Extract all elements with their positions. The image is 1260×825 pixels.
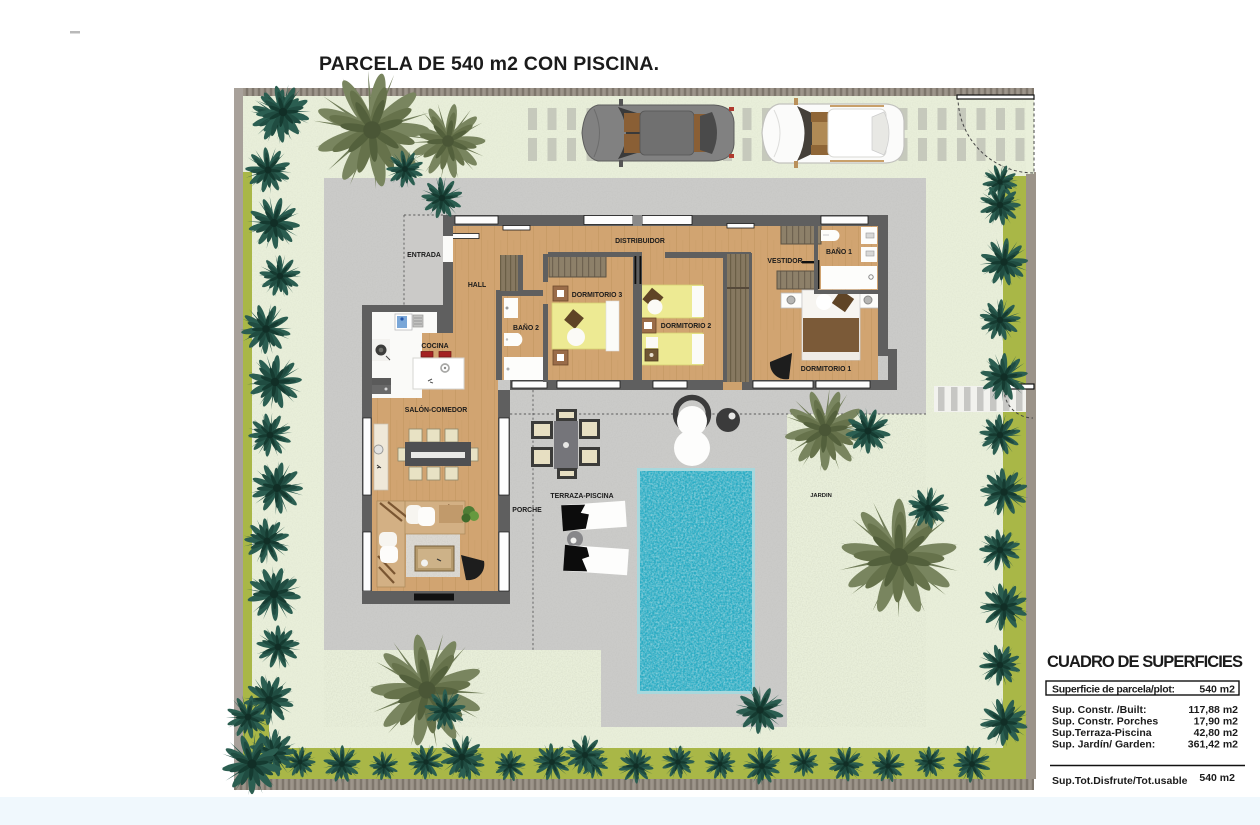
- svg-text:BAÑO 1: BAÑO 1: [826, 247, 852, 256]
- svg-text:DORMITORIO 2: DORMITORIO 2: [661, 323, 712, 330]
- svg-text:Superficie de parcela/plot:: Superficie de parcela/plot:: [1052, 684, 1175, 696]
- svg-text:DORMITORIO 1: DORMITORIO 1: [801, 366, 852, 373]
- svg-text:Sup. Jardín/ Garden:: Sup. Jardín/ Garden:: [1052, 739, 1155, 751]
- svg-text:Sup. Constr. /Built:: Sup. Constr. /Built:: [1052, 704, 1147, 716]
- svg-text:Sup. Constr. Porches: Sup. Constr. Porches: [1052, 716, 1158, 728]
- svg-text:VESTIDOR: VESTIDOR: [767, 258, 802, 265]
- svg-text:CUADRO DE SUPERFICIES: CUADRO DE SUPERFICIES: [1047, 653, 1243, 671]
- svg-text:PARCELA DE 540 m2 CON PISCINA.: PARCELA DE 540 m2 CON PISCINA.: [319, 53, 659, 75]
- svg-text:ENTRADA: ENTRADA: [407, 252, 441, 259]
- svg-text:BAÑO 2: BAÑO 2: [513, 323, 539, 332]
- svg-text:COCINA: COCINA: [421, 343, 448, 350]
- svg-text:PORCHE: PORCHE: [512, 507, 542, 514]
- svg-text:540 m2: 540 m2: [1199, 772, 1235, 784]
- svg-text:540 m2: 540 m2: [1199, 684, 1235, 696]
- svg-text:SALÓN-COMEDOR: SALÓN-COMEDOR: [405, 405, 467, 414]
- svg-text:JARDIN: JARDIN: [810, 493, 832, 499]
- svg-text:Sup.Tot.Disfrute/Tot.usable: Sup.Tot.Disfrute/Tot.usable: [1052, 775, 1188, 787]
- svg-text:TERRAZA-PISCINA: TERRAZA-PISCINA: [550, 493, 613, 500]
- svg-text:Sup.Terraza-Piscina: Sup.Terraza-Piscina: [1052, 727, 1152, 739]
- svg-text:117,88 m2: 117,88 m2: [1188, 704, 1238, 716]
- svg-text:HALL: HALL: [468, 282, 486, 289]
- svg-text:17,90 m2: 17,90 m2: [1194, 716, 1239, 728]
- svg-text:DORMITORIO 3: DORMITORIO 3: [572, 292, 623, 299]
- svg-text:361,42 m2: 361,42 m2: [1188, 739, 1238, 751]
- svg-text:42,80 m2: 42,80 m2: [1194, 727, 1239, 739]
- svg-text:DISTRIBUIDOR: DISTRIBUIDOR: [615, 238, 665, 245]
